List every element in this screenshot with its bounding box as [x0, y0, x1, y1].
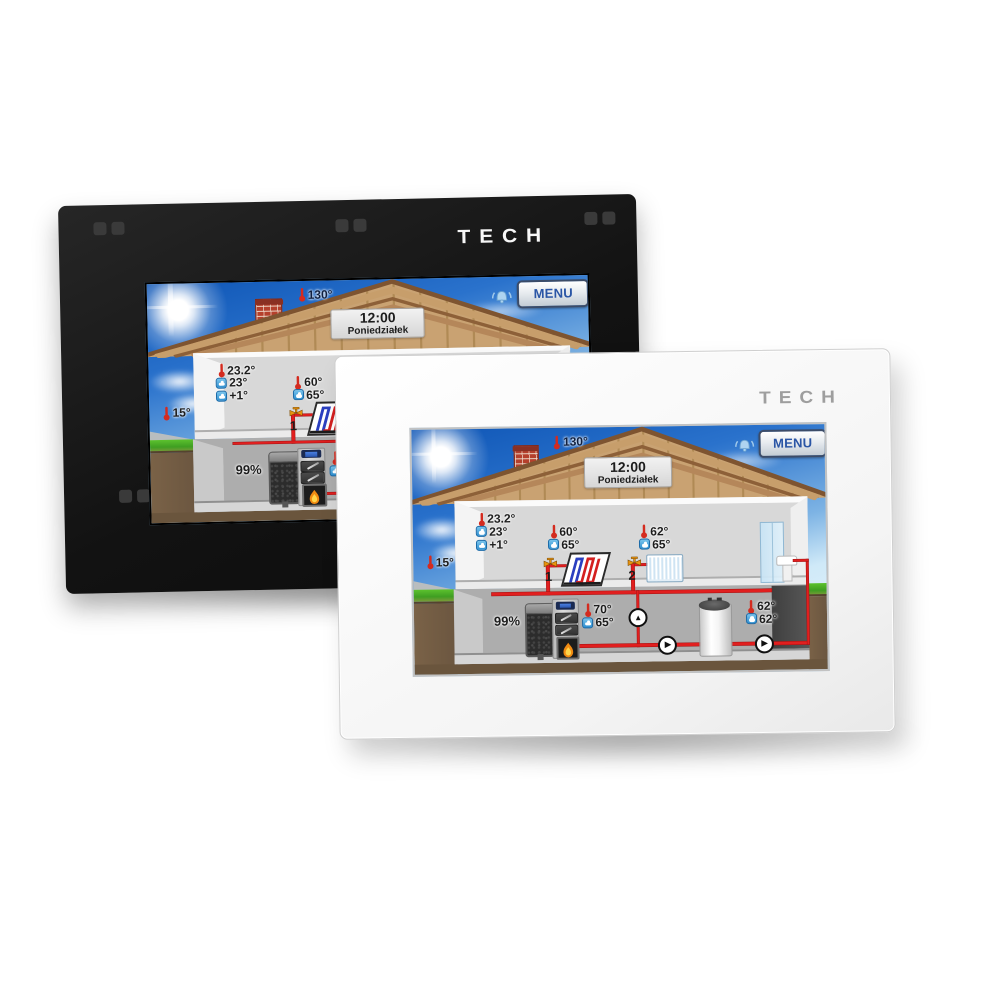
- zone2-set-row: 65°: [639, 537, 670, 551]
- touchscreen-white[interactable]: 1 2 ▲ ▶ ▶ 130: [409, 422, 830, 677]
- hot-water-tank: [699, 604, 732, 657]
- clock-panel: 12:00 Poniedziałek: [331, 307, 425, 340]
- zone2-number: 2: [628, 568, 635, 583]
- tech-logo: TECH: [759, 387, 843, 408]
- clock-time: 12:00: [360, 309, 396, 326]
- menu-button[interactable]: MENU: [517, 279, 589, 308]
- setpoint-icon: [293, 389, 304, 400]
- chimney-temp-row: 130°: [298, 287, 333, 303]
- boiler-hatch: [301, 460, 325, 472]
- zone1-number: 1: [290, 418, 298, 433]
- zone1-set-row: 65°: [548, 537, 579, 551]
- setpoint-icon: [216, 390, 227, 401]
- fuel-hopper: [268, 452, 300, 504]
- boiler-set-row: 65°: [582, 615, 613, 629]
- thermometer-icon: [162, 406, 170, 421]
- shower-cabin: [760, 522, 784, 583]
- setpoint-icon: [216, 377, 227, 388]
- boiler-body: [297, 447, 326, 506]
- frame-sensor-dots: [336, 219, 367, 233]
- boiler-hatch: [555, 624, 578, 636]
- clock-panel: 12:00 Poniedziałek: [584, 456, 672, 489]
- tank-fitting: [707, 598, 711, 601]
- outdoor-temp-row: 15°: [426, 555, 454, 570]
- boiler-display: [302, 450, 322, 458]
- grass-right: [808, 583, 827, 595]
- pipe: [793, 559, 809, 561]
- thermometer-icon: [426, 555, 434, 570]
- frame-sensor-dots: [93, 221, 124, 235]
- tank-cap: [699, 600, 730, 611]
- setpoint-icon: [476, 526, 487, 537]
- controller-device-white: TECH: [334, 348, 895, 740]
- fuel-level-label: 99%: [235, 462, 261, 478]
- room-correction-row: +1°: [216, 388, 248, 403]
- clock-day: Poniedziałek: [348, 325, 409, 338]
- fuel-level-label: 99%: [494, 613, 520, 628]
- fuel-hopper: [525, 604, 555, 657]
- alarm-bell-icon: [489, 285, 515, 305]
- alarm-bell-icon: [732, 434, 756, 454]
- frame-sensor-dots: [119, 489, 150, 503]
- tech-logo: TECH: [457, 225, 550, 249]
- menu-button[interactable]: MENU: [759, 429, 827, 458]
- valve-icon-1: [286, 407, 306, 418]
- radiator: [646, 554, 684, 582]
- tank-fitting: [717, 598, 721, 601]
- setpoint-icon: [582, 617, 593, 628]
- clock-day: Poniedziałek: [598, 474, 659, 486]
- boiler-hatch: [301, 472, 325, 484]
- setpoint-icon: [548, 539, 559, 550]
- zone1-number: 1: [545, 569, 552, 584]
- setpoint-icon: [639, 539, 650, 550]
- thermometer-icon: [298, 287, 306, 302]
- flame-icon: [307, 489, 322, 505]
- chimney-temp-row: 130°: [553, 434, 588, 449]
- basement-dark-wall: [772, 585, 810, 657]
- room-correction-row: +1°: [476, 538, 508, 552]
- boiler-body: [552, 599, 579, 659]
- product-photo-stage: TECH: [0, 0, 1000, 1000]
- sink-pedestal: [782, 563, 792, 581]
- boiler-hatch: [555, 612, 578, 624]
- boiler-display: [556, 602, 575, 610]
- valve-icon-2: [625, 556, 643, 568]
- boiler-firebox: [302, 484, 327, 507]
- thermometer-icon: [553, 434, 561, 449]
- flame-icon: [561, 641, 575, 657]
- soil-right: [808, 594, 828, 669]
- boiler-firebox: [556, 636, 580, 659]
- frame-sensor-dots: [584, 211, 615, 225]
- clock-time: 12:00: [610, 458, 646, 475]
- tank-set-row: 62°: [746, 611, 777, 625]
- valve-icon-1: [541, 557, 559, 569]
- zone1-set-row: 65°: [293, 387, 324, 402]
- outdoor-temp-row: 15°: [162, 405, 190, 421]
- hopper-leg: [282, 501, 289, 507]
- setpoint-icon: [746, 613, 757, 624]
- setpoint-icon: [476, 539, 487, 550]
- home-heating-screen: 1 2 ▲ ▶ ▶ 130: [412, 424, 829, 675]
- hopper-leg: [537, 654, 543, 660]
